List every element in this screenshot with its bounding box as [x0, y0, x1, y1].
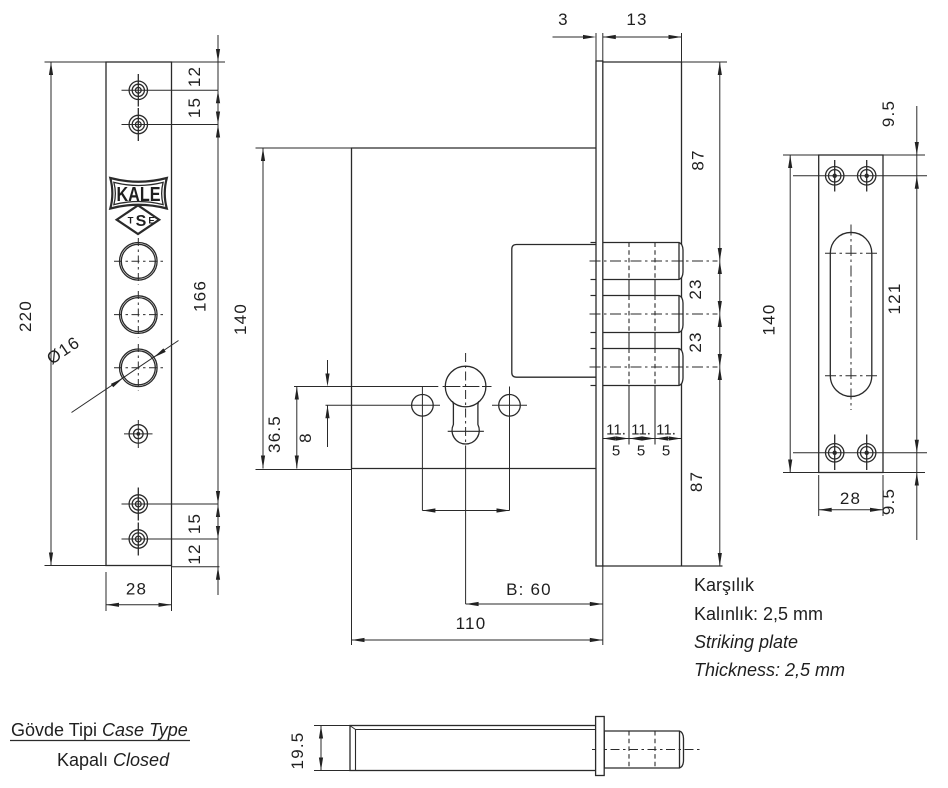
svg-text:23: 23 [686, 278, 705, 299]
svg-text:8: 8 [296, 432, 315, 443]
svg-text:Ø16: Ø16 [43, 333, 83, 369]
svg-text:Kalınlık: 2,5 mm: Kalınlık: 2,5 mm [694, 604, 823, 624]
svg-text:12: 12 [185, 543, 204, 564]
svg-text:15: 15 [185, 97, 204, 118]
svg-text:140: 140 [760, 304, 779, 336]
svg-text:36.5: 36.5 [265, 415, 284, 453]
svg-text:B: 60: B: 60 [506, 580, 552, 599]
svg-text:110: 110 [456, 614, 487, 633]
svg-text:166: 166 [191, 280, 210, 312]
svg-text:23: 23 [686, 331, 705, 352]
svg-text:KALE: KALE [117, 184, 161, 206]
svg-text:Thickness: 2,5 mm: Thickness: 2,5 mm [694, 660, 845, 680]
svg-text:E: E [148, 216, 154, 227]
svg-text:T: T [128, 216, 134, 227]
svg-text:11.: 11. [656, 422, 676, 439]
svg-text:19.5: 19.5 [288, 732, 307, 770]
svg-text:Striking plate: Striking plate [694, 632, 798, 652]
svg-text:28: 28 [126, 580, 147, 599]
svg-text:28: 28 [840, 489, 861, 508]
svg-text:87: 87 [687, 471, 706, 492]
svg-text:S: S [136, 213, 147, 230]
svg-text:11.: 11. [631, 422, 651, 439]
svg-text:5: 5 [662, 443, 670, 460]
svg-text:5: 5 [637, 443, 645, 460]
svg-text:12: 12 [185, 66, 204, 87]
svg-text:5: 5 [612, 443, 620, 460]
svg-text:121: 121 [885, 283, 904, 315]
svg-text:15: 15 [185, 513, 204, 534]
svg-text:3: 3 [558, 10, 569, 29]
svg-text:9.5: 9.5 [879, 488, 898, 515]
svg-text:Karşılık: Karşılık [694, 575, 755, 595]
svg-text:220: 220 [16, 300, 35, 332]
svg-text:9.5: 9.5 [879, 100, 898, 127]
svg-text:Gövde Tipi Case Type: Gövde Tipi Case Type [11, 720, 188, 740]
svg-text:Kapalı Closed: Kapalı Closed [57, 750, 170, 770]
svg-text:87: 87 [689, 149, 708, 170]
svg-text:13: 13 [626, 10, 647, 29]
svg-text:140: 140 [231, 303, 250, 335]
svg-text:11.: 11. [606, 422, 626, 439]
